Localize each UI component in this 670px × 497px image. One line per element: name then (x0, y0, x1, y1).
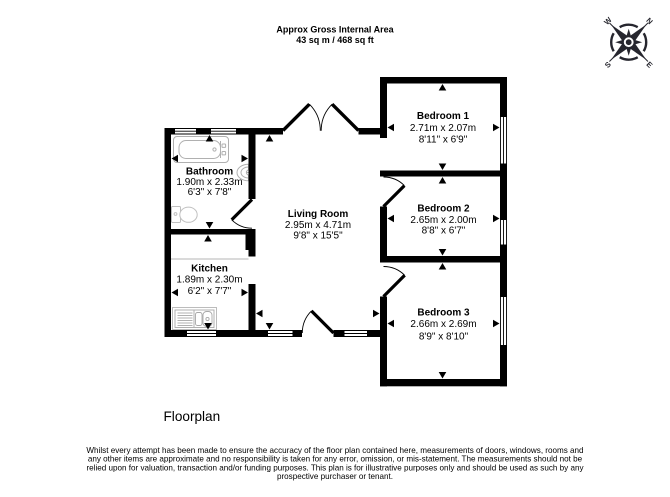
svg-text:Bedroom 3: Bedroom 3 (417, 308, 470, 319)
svg-text:Bedroom 2: Bedroom 2 (417, 204, 470, 215)
svg-text:9'8" x 15'5": 9'8" x 15'5" (293, 231, 343, 242)
svg-text:2.71m x 2.07m: 2.71m x 2.07m (410, 123, 476, 134)
svg-text:6'2" x 7'7": 6'2" x 7'7" (188, 286, 232, 297)
svg-text:8'8" x 6'7": 8'8" x 6'7" (422, 226, 466, 237)
svg-text:any other items are approximat: any other items are approximate and no r… (88, 455, 583, 464)
svg-text:2.95m x 4.71m: 2.95m x 4.71m (285, 220, 351, 231)
svg-text:6'3" x 7'8": 6'3" x 7'8" (188, 187, 232, 198)
svg-text:Living Room: Living Room (288, 209, 349, 220)
svg-text:Whilst every attempt has been: Whilst every attempt has been made to en… (86, 446, 583, 455)
svg-text:2.66m x 2.69m: 2.66m x 2.69m (410, 319, 476, 330)
svg-text:8'9" x 8'10": 8'9" x 8'10" (419, 332, 469, 343)
svg-text:43 sq m / 468 sq ft: 43 sq m / 468 sq ft (296, 35, 374, 45)
svg-text:prospective purchaser or tenan: prospective purchaser or tenant. (277, 472, 393, 481)
svg-text:2.65m x 2.00m: 2.65m x 2.00m (410, 215, 476, 226)
svg-text:Approx Gross Internal Area: Approx Gross Internal Area (276, 24, 394, 34)
svg-text:relied upon for valuation, tra: relied upon for valuation, transaction a… (86, 463, 584, 472)
svg-text:Floorplan: Floorplan (164, 409, 221, 424)
svg-text:Bathroom: Bathroom (186, 166, 233, 177)
svg-text:8'11" x 6'9": 8'11" x 6'9" (419, 134, 468, 145)
svg-text:Bedroom 1: Bedroom 1 (417, 111, 470, 122)
svg-text:1.89m x 2.30m: 1.89m x 2.30m (176, 275, 242, 286)
svg-text:Kitchen: Kitchen (191, 263, 228, 274)
